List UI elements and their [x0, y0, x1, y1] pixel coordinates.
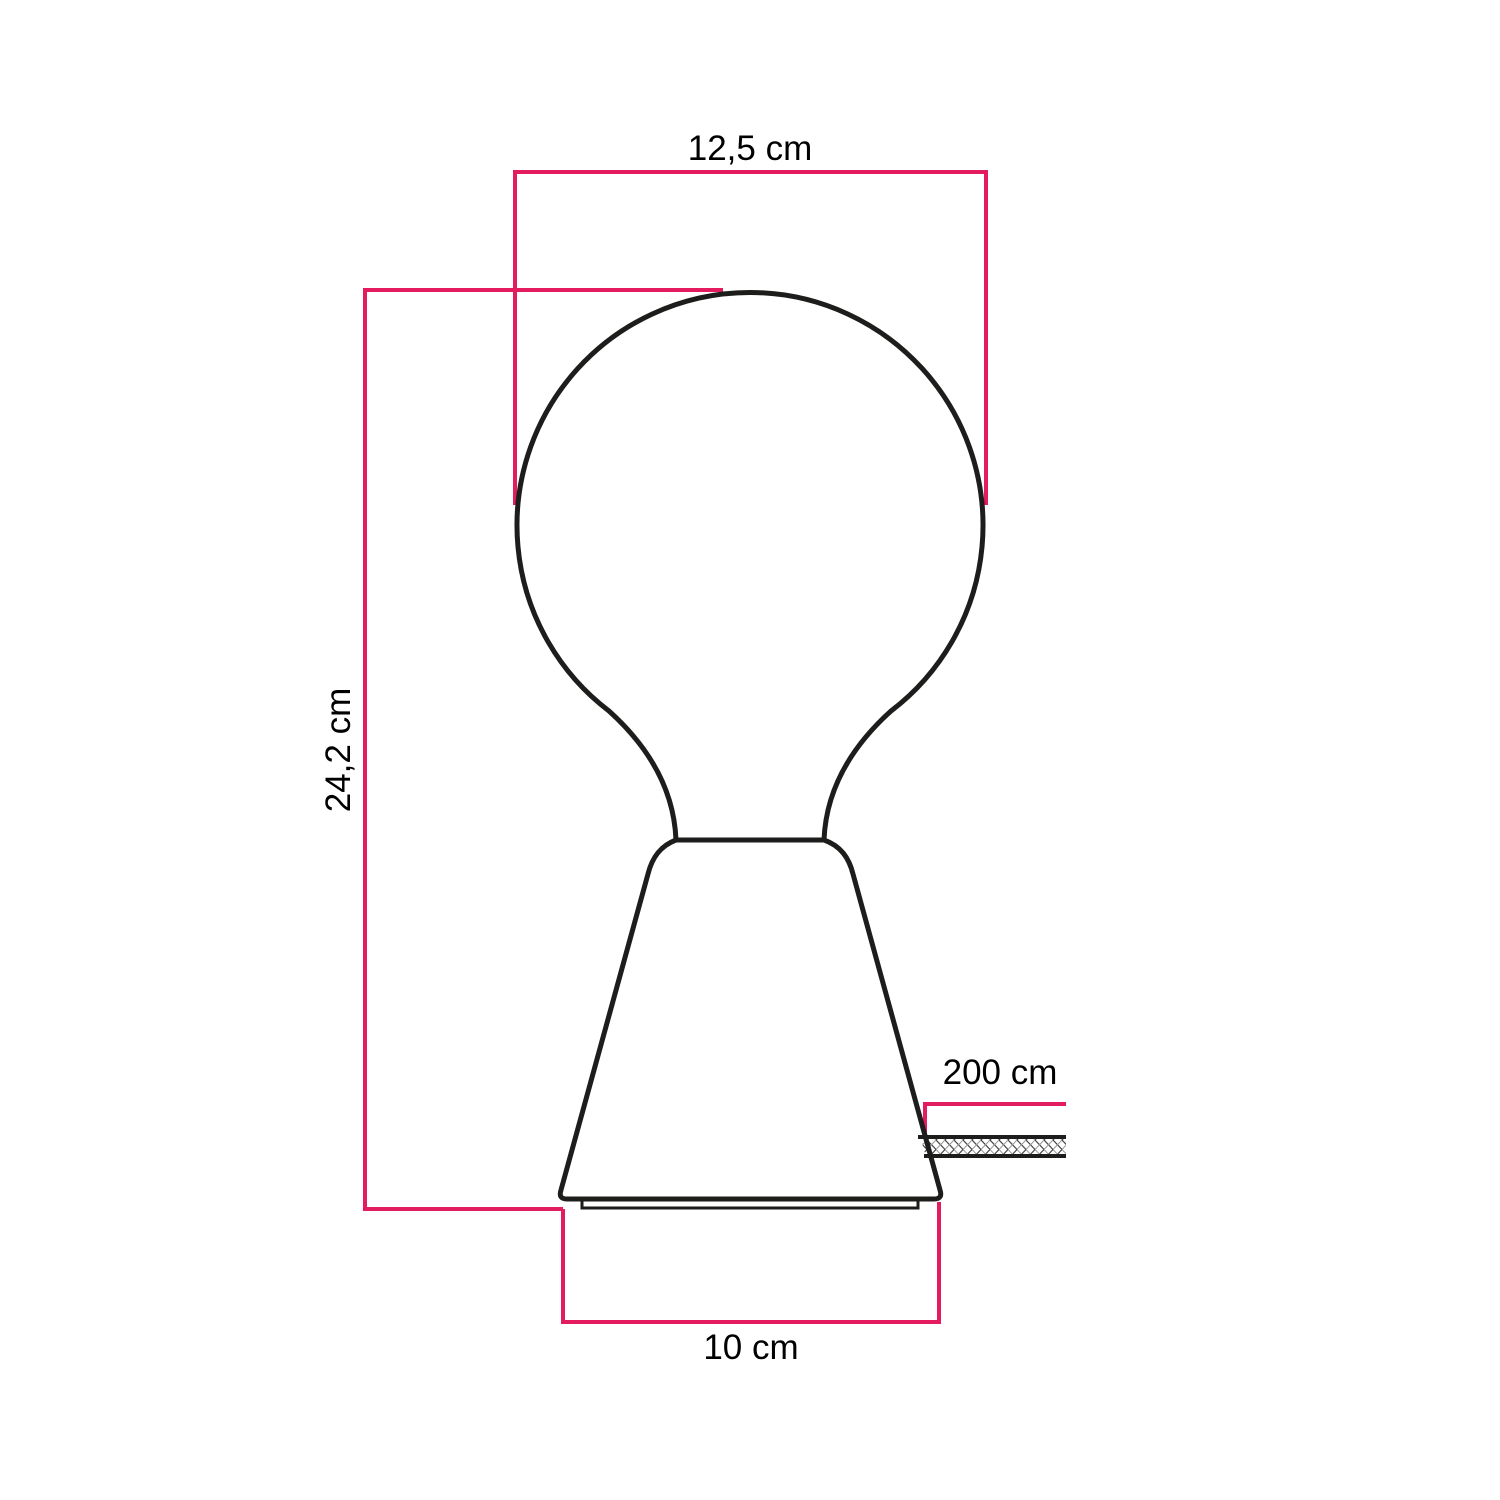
base-width-dimension-line — [563, 1202, 939, 1322]
height-label: 24,2 cm — [319, 688, 358, 813]
cable-length-dimension-line — [925, 1104, 1066, 1134]
bulb-width-label: 12,5 cm — [688, 129, 813, 168]
bulb-outline — [517, 293, 983, 840]
bulb-width-dimension-line — [515, 172, 986, 505]
cable-length-label: 200 cm — [943, 1053, 1058, 1092]
diagram-canvas: 12,5 cm 24,2 cm 200 cm 10 cm — [0, 0, 1500, 1500]
lamp-outline — [517, 293, 983, 1208]
base-plate-outline — [582, 1201, 918, 1208]
power-cable — [918, 1137, 1066, 1156]
height-dimension-line — [365, 290, 723, 1209]
lamp-base-outline — [560, 840, 941, 1199]
cable-hatch — [920, 1137, 1066, 1156]
lamp-dimension-diagram: 12,5 cm 24,2 cm 200 cm 10 cm — [0, 0, 1500, 1500]
base-width-label: 10 cm — [703, 1328, 798, 1367]
